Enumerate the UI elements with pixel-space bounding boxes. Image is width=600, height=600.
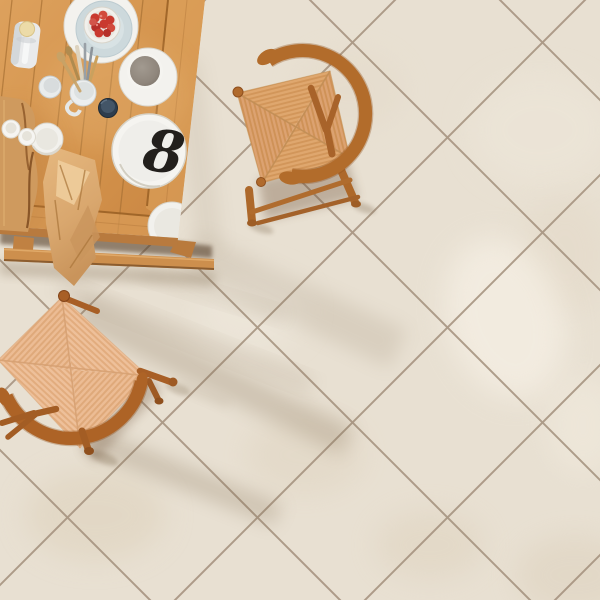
photo-scene: 8 bbox=[0, 0, 600, 600]
dining-table: 8 bbox=[0, 0, 214, 286]
leg-post-knob bbox=[59, 291, 70, 302]
gray-bowl bbox=[130, 56, 160, 86]
berry bbox=[95, 29, 104, 38]
berry-highlight bbox=[96, 24, 98, 26]
saucer-stack bbox=[31, 123, 63, 155]
egg-cup-inner bbox=[6, 123, 17, 134]
berry bbox=[89, 18, 97, 26]
leg-post-knob bbox=[257, 178, 266, 187]
chair-foot bbox=[84, 447, 94, 455]
mug bbox=[39, 76, 61, 98]
chair-foot bbox=[351, 201, 361, 208]
numeral-plate: 8 bbox=[112, 114, 189, 189]
berry-highlight bbox=[100, 15, 103, 18]
navy-cup bbox=[99, 99, 118, 118]
scene-canvas: 8 bbox=[0, 0, 600, 600]
cutting-board bbox=[0, 96, 38, 232]
chair-foot bbox=[155, 398, 164, 405]
egg-cup-inner bbox=[22, 131, 32, 141]
berry bbox=[103, 29, 111, 37]
leg-post-knob bbox=[169, 378, 178, 387]
coffee-bowl-plate bbox=[119, 48, 177, 106]
leg-post-knob bbox=[233, 87, 243, 97]
chair-foot bbox=[247, 220, 257, 227]
